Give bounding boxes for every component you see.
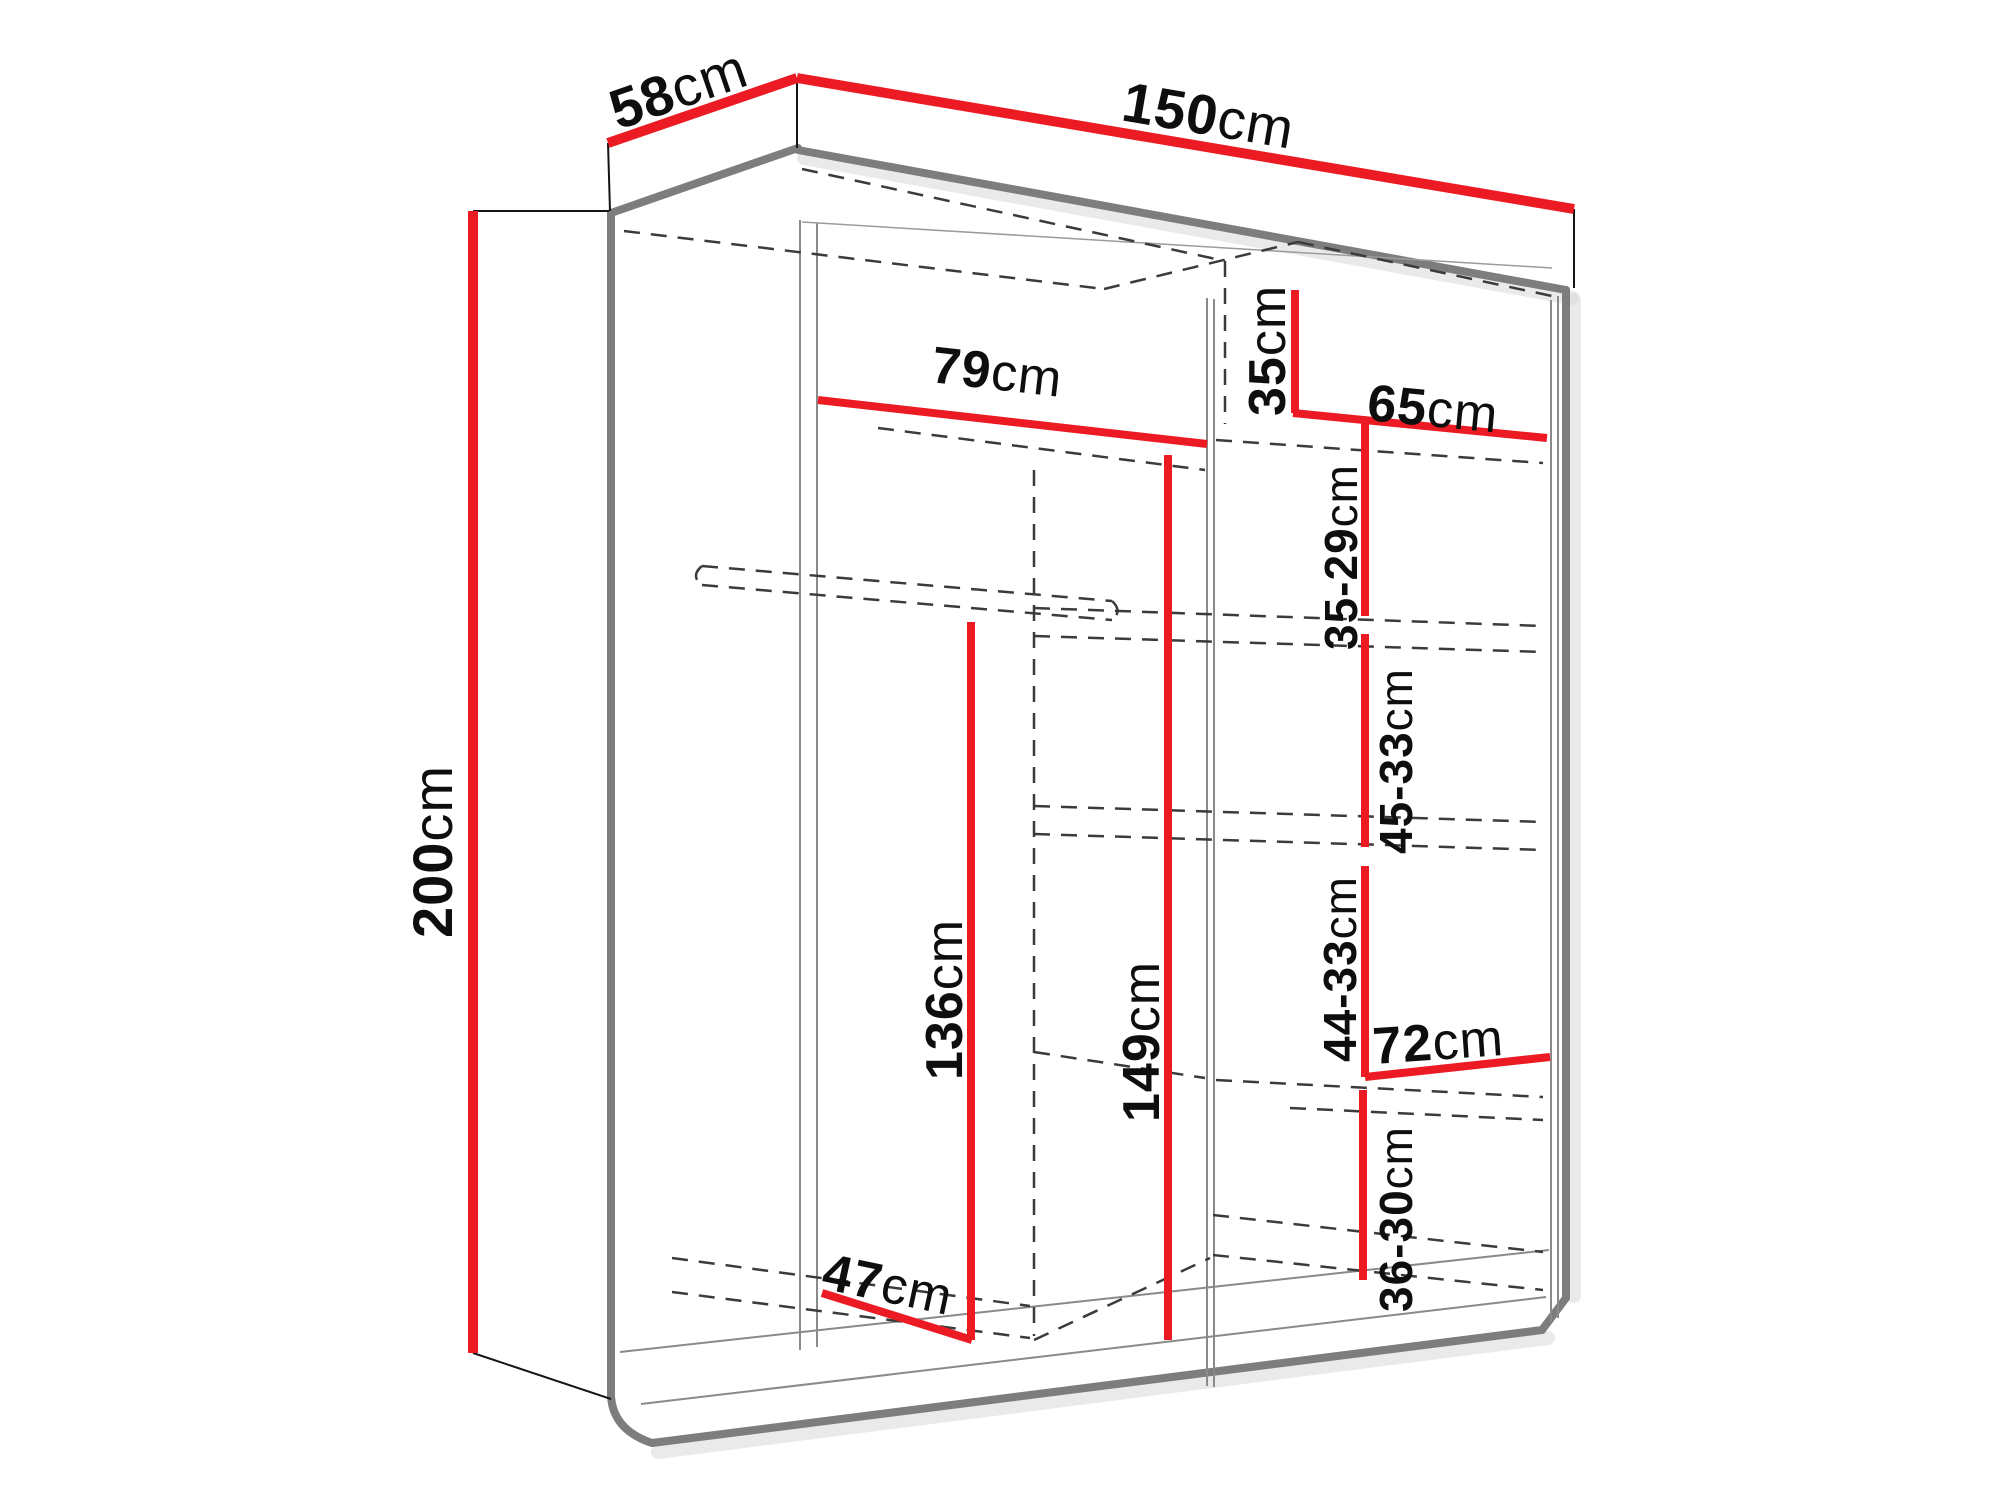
top-panel-front-bottom-edge [798,150,1566,290]
left-panel-front-edge [611,213,652,1443]
cabinet-outline [611,148,1566,1443]
left-top-shelf-width-label: 79cm [929,336,1066,408]
hanging-rail [696,566,1118,620]
right-shelf-width-label: 65cm [1365,374,1501,444]
hanging-height-left-label: 136cm [916,919,974,1080]
left-panel-top-edge [611,148,798,213]
diagram-canvas: 58cm 150cm 200cm 79cm 35cm 65cm 35-29cm … [0,0,2000,1500]
right-gap-1-label: 35-29cm [1315,464,1367,650]
right-bottom-bevel [1542,1298,1566,1330]
bottom-shelf-width-label: 72cm [1371,1009,1506,1076]
hanging-height-center-label: 149cm [1113,961,1171,1122]
right-gap-4-label: 36-30cm [1370,1126,1422,1312]
shelf-79-line [818,400,1207,444]
width-dimension-label: 150cm [1118,70,1299,161]
right-top-gap-label: 35cm [1239,285,1297,416]
height-dimension-label: 200cm [401,765,464,938]
depth-dimension-label: 58cm [601,36,755,141]
shadow-edges [658,158,1574,1452]
right-gap-3-label: 44-33cm [1314,876,1366,1062]
right-gap-2-label: 45-33cm [1370,668,1422,854]
dimension-labels: 58cm 150cm 200cm 79cm 35cm 65cm 35-29cm … [401,36,1506,1327]
wardrobe-dimension-diagram: 58cm 150cm 200cm 79cm 35cm 65cm 35-29cm … [0,0,2000,1500]
